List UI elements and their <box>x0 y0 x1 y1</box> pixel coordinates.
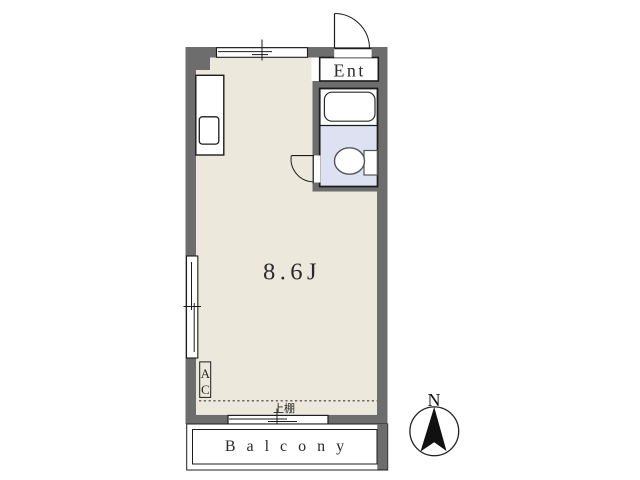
svg-text:上棚: 上棚 <box>273 401 295 415</box>
svg-text:Balcony: Balcony <box>225 438 355 455</box>
svg-text:A: A <box>201 366 211 381</box>
svg-text:8.6J: 8.6J <box>263 259 321 286</box>
svg-text:C: C <box>201 382 210 397</box>
svg-text:Ent: Ent <box>333 61 366 81</box>
